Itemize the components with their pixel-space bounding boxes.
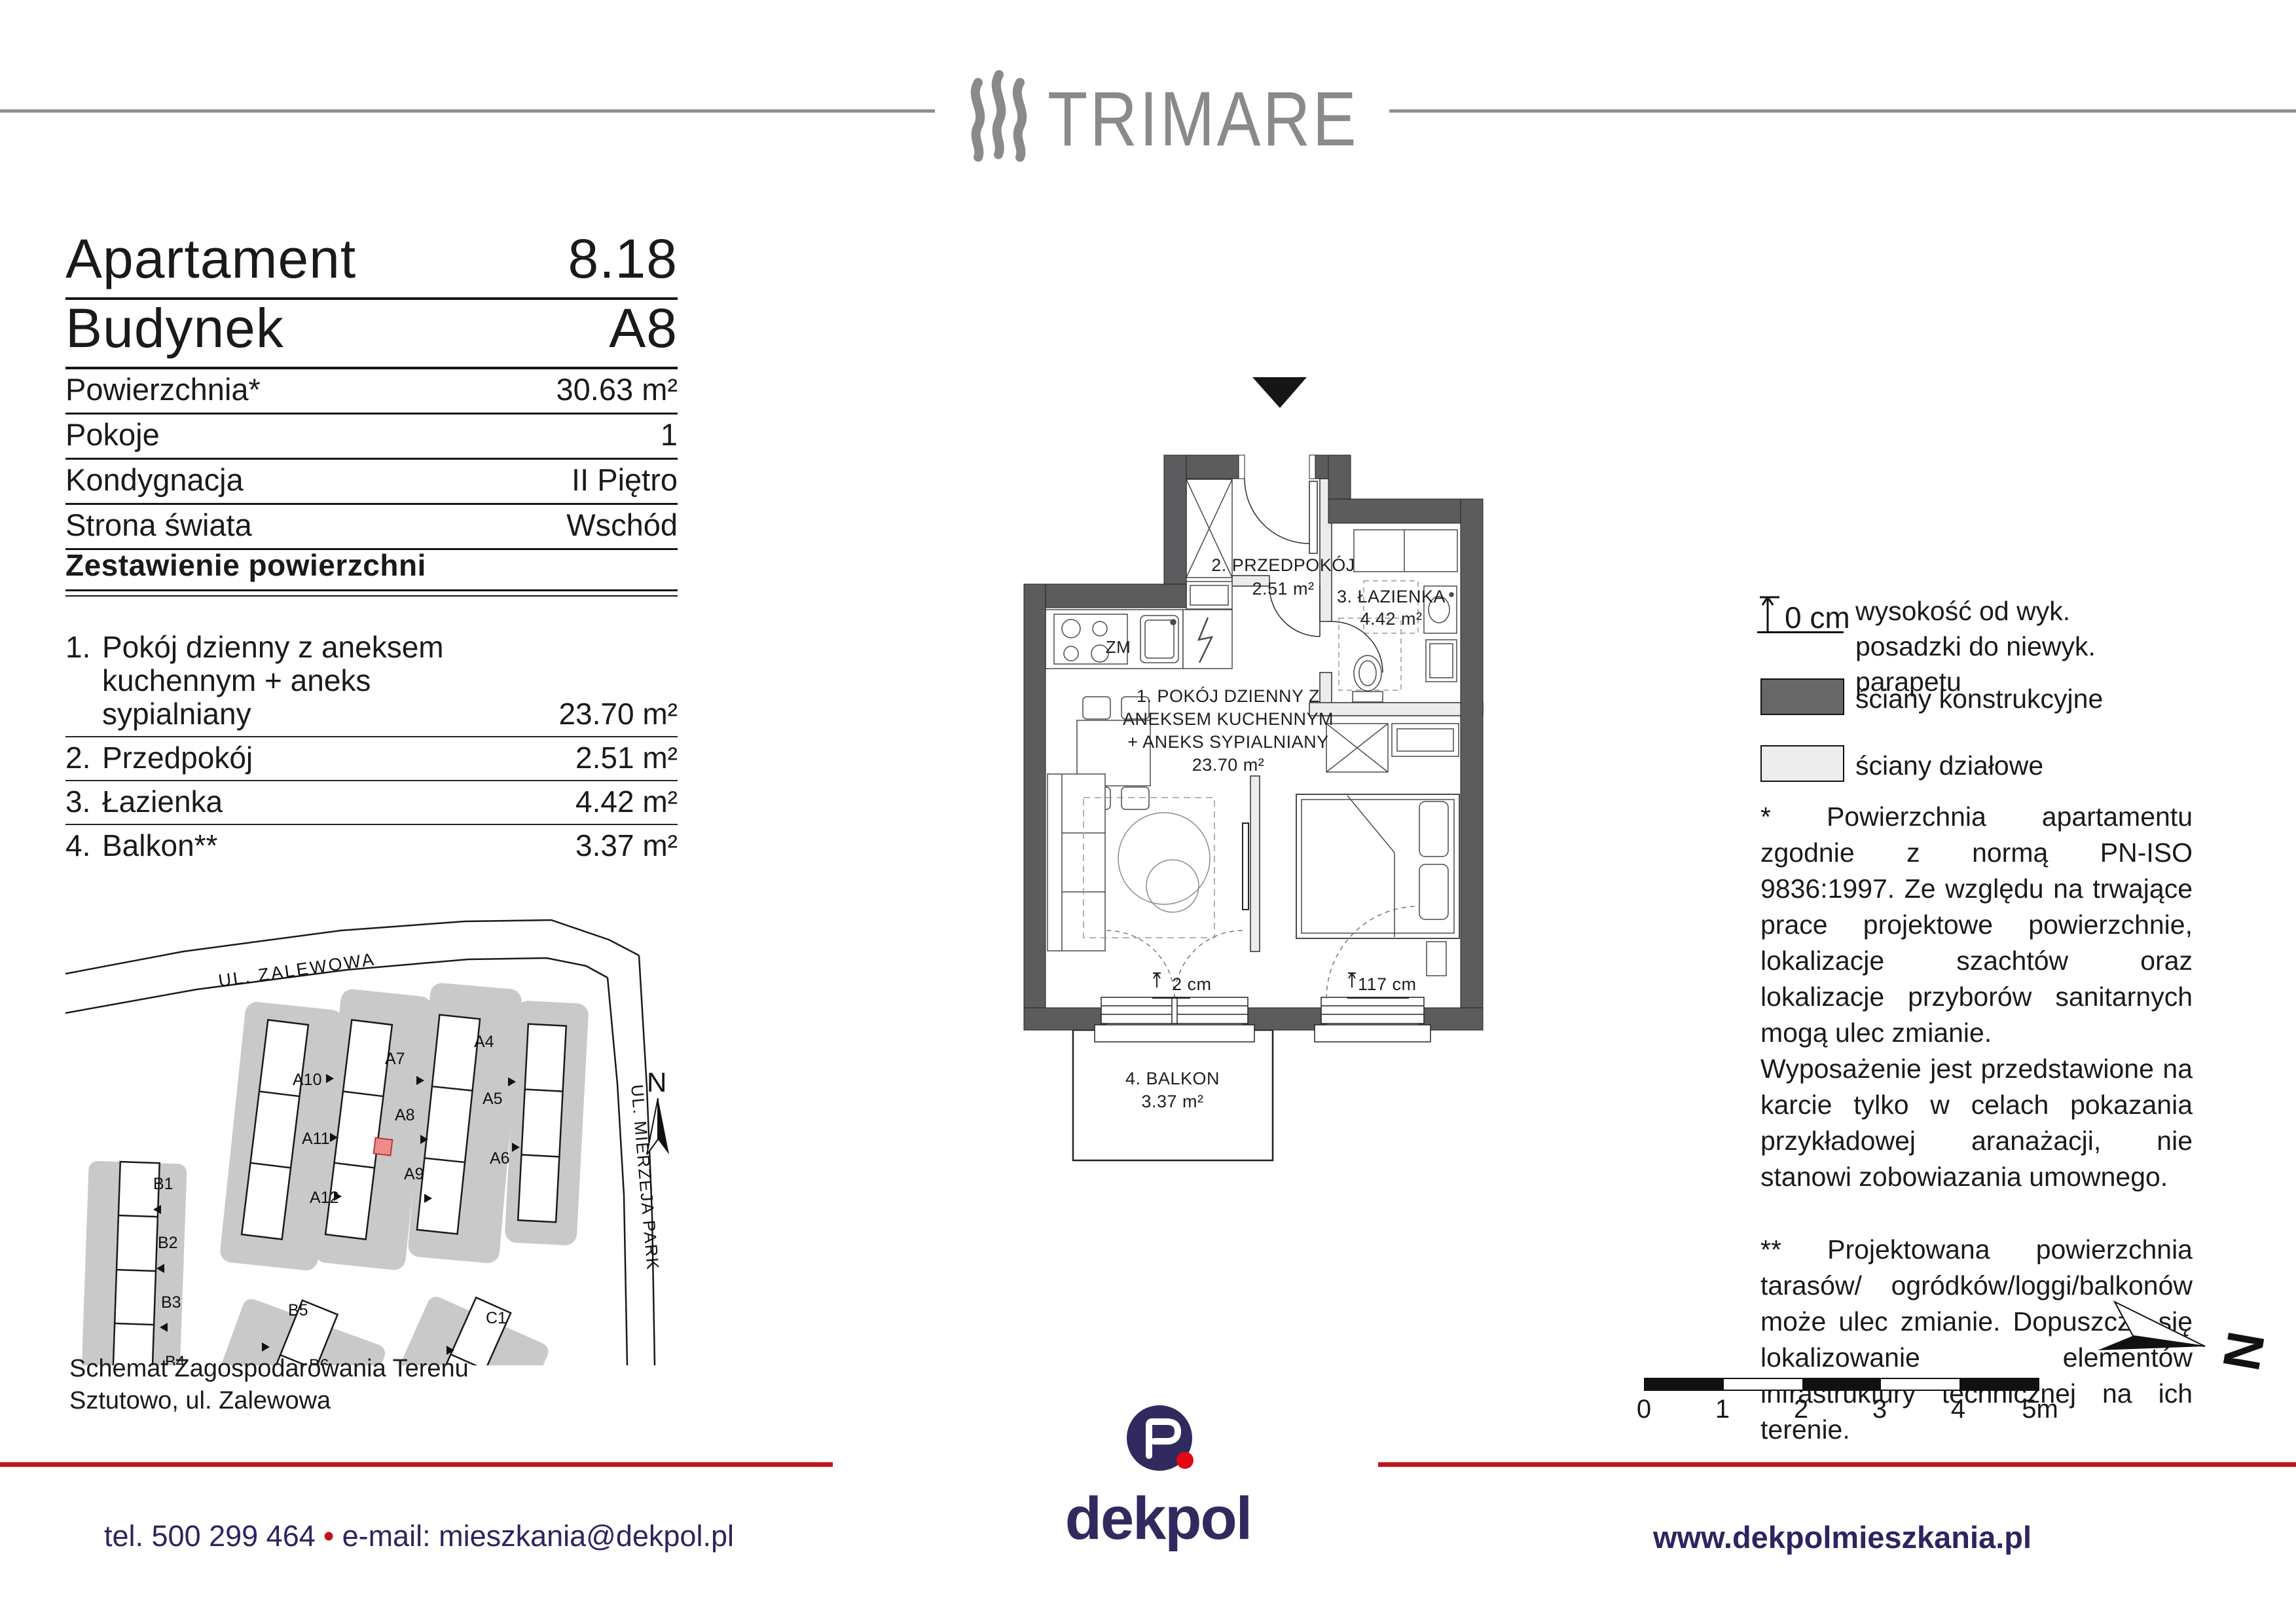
- caption-line1: Schemat Zagospodarowania Terenu: [69, 1353, 469, 1385]
- partition-wall-swatch: [1760, 745, 1844, 782]
- footer-website: www.dekpolmieszkania.pl: [1580, 1519, 2104, 1555]
- item-name: Łazienka: [102, 785, 456, 819]
- rug-icon: [1118, 813, 1210, 904]
- apartment-card-page: TRIMARE Apartament 8.18 Budynek A8 Powie…: [0, 0, 2296, 1624]
- legend-partition-text: ściany działowe: [1855, 748, 2043, 783]
- item-number: 1.: [65, 631, 102, 731]
- living-area: 23.70 m²: [1192, 755, 1265, 775]
- dekpol-red-dot: [1176, 1452, 1194, 1469]
- label-a4: A4: [474, 1033, 494, 1051]
- table-row: Strona świata Wschód: [65, 505, 678, 550]
- table-row: Apartament 8.18: [65, 231, 678, 300]
- item-value: 2.51 m²: [456, 741, 678, 775]
- row-label: Pokoje: [65, 416, 160, 452]
- area-summary-title: Zestawienie powierzchni: [65, 547, 678, 583]
- footer-separator: •: [323, 1519, 334, 1553]
- label-a6: A6: [490, 1149, 510, 1168]
- living-label-1: 1. POKÓJ DZIENNY Z: [1137, 686, 1320, 706]
- bed: [1296, 794, 1459, 976]
- dim-balcony-door: 2 cm: [1172, 974, 1212, 994]
- table-row: Kondygnacja II Piętro: [65, 460, 678, 505]
- item-number: 4.: [65, 829, 102, 862]
- label-c2: C2: [504, 1365, 525, 1365]
- living-label-3: + ANEKS SYPIALNIANY: [1127, 732, 1328, 752]
- floor-plan: 2. PRZEDPOKÓJ 2.51 m² 3. ŁAZIENKA 4.42 m…: [1021, 354, 1493, 1179]
- dekpol-logo: dekpol: [1048, 1372, 1270, 1562]
- scale-bar: [1644, 1378, 2039, 1391]
- list-item: 1. Pokój dzienny z aneksem kuchennym + a…: [65, 597, 678, 737]
- row-label: Kondygnacja: [65, 462, 244, 498]
- item-number: 3.: [65, 785, 102, 819]
- trimare-waves-icon: [975, 75, 1023, 157]
- label-b3: B3: [161, 1293, 181, 1312]
- label-a10: A10: [293, 1071, 321, 1089]
- item-value: 23.70 m²: [456, 631, 678, 731]
- map-north-label: N: [647, 1067, 666, 1098]
- dim-bedroom-window: 117 cm: [1358, 974, 1417, 994]
- bath-area: 4.42 m²: [1360, 609, 1422, 629]
- map-north-icon: N: [647, 1067, 669, 1154]
- balcony-area: 3.37 m²: [1141, 1092, 1203, 1111]
- site-plan: UL. ZALEWOWA UL. MIERZEJA PARK A10 A11 A…: [65, 913, 694, 1365]
- label-a5: A5: [483, 1090, 503, 1108]
- list-item: 3. Łazienka 4.42 m²: [65, 781, 678, 825]
- area-summary: Zestawienie powierzchni 1. Pokój dzienny…: [65, 547, 678, 868]
- label-a8: A8: [395, 1106, 415, 1124]
- list-item: 4. Balkon** 3.37 m²: [65, 825, 678, 868]
- scale-label: 0: [1637, 1395, 1651, 1424]
- tv-icon: [1243, 823, 1248, 910]
- scale-label: 2: [1794, 1395, 1808, 1424]
- sofa: [1048, 774, 1105, 951]
- disclaimer-1a: * Powierzchnia apartamentu zgodnie z nor…: [1760, 799, 2193, 1051]
- scale-label: 4: [1951, 1395, 1965, 1424]
- row-value: 1: [661, 416, 678, 452]
- label-a11: A11: [302, 1130, 330, 1148]
- footer-rule-right: [1378, 1462, 2296, 1467]
- header-rule-right: [1389, 109, 2296, 113]
- item-value: 4.42 m²: [456, 785, 678, 819]
- door-jamb: [1309, 455, 1315, 479]
- trimare-logo: TRIMARE: [956, 58, 1381, 166]
- item-name: Przedpokój: [102, 741, 456, 775]
- brand-wordmark: TRIMARE: [1048, 76, 1358, 162]
- row-label: Powierzchnia*: [65, 371, 261, 407]
- entrance-door-leaf: [1309, 481, 1317, 553]
- site-plan-caption: Schemat Zagospodarowania Terenu Sztutowo…: [69, 1353, 469, 1417]
- dekpol-wordmark: dekpol: [1065, 1485, 1251, 1552]
- hall-wardrobe: [1186, 479, 1232, 609]
- label-c1: C1: [486, 1309, 507, 1327]
- caption-line2: Sztutowo, ul. Zalewowa: [69, 1385, 469, 1417]
- item-name: Balkon**: [102, 829, 456, 862]
- rug-icon-small: [1146, 860, 1199, 912]
- table-row: Budynek A8: [65, 300, 678, 369]
- legend-underline: [1757, 631, 1844, 633]
- kitchen: [1046, 610, 1232, 669]
- footer-tel: tel. 500 299 464: [104, 1519, 316, 1553]
- row-value: 30.63 m²: [556, 371, 678, 407]
- row-value: 8.18: [568, 227, 678, 291]
- scale-label: 3: [1872, 1395, 1887, 1424]
- apartment-info-table: Apartament 8.18 Budynek A8 Powierzchnia*…: [65, 231, 678, 550]
- label-a12: A12: [310, 1189, 338, 1207]
- label-b5: B5: [288, 1301, 308, 1319]
- row-value: II Piętro: [572, 462, 678, 498]
- row-label: Strona świata: [65, 507, 252, 543]
- row-label: Apartament: [65, 227, 356, 291]
- table-row: Powierzchnia* 30.63 m²: [65, 369, 678, 415]
- scale-label: 1: [1715, 1395, 1730, 1424]
- door-jamb: [1239, 455, 1245, 479]
- table-row: Pokoje 1: [65, 415, 678, 460]
- street-label-zalewowa: UL. ZALEWOWA: [217, 950, 377, 991]
- bath-label: 3. ŁAZIENKA: [1337, 587, 1446, 606]
- hall-area: 2.51 m²: [1252, 579, 1314, 599]
- entrance-arrow-icon: [1252, 377, 1307, 408]
- footer-rule-left: [0, 1462, 833, 1467]
- north-compass-icon: N: [2082, 1277, 2278, 1388]
- hall-label: 2. PRZEDPOKÓJ: [1211, 555, 1355, 575]
- label-a9: A9: [404, 1165, 424, 1183]
- item-value: 3.37 m²: [456, 829, 678, 862]
- balcony-label: 4. BALKON: [1125, 1069, 1220, 1088]
- scale-label: 5m: [2022, 1395, 2058, 1424]
- row-value: Wschód: [566, 507, 678, 543]
- footer-contact: tel. 500 299 464 • e-mail: mieszkania@de…: [0, 1519, 838, 1553]
- legend-structural-text: ściany konstrukcyjne: [1855, 681, 2103, 716]
- bedroom-storage: [1326, 724, 1459, 772]
- living-label-2: ANEKSEM KUCHENNYM: [1123, 709, 1334, 729]
- list-item: 2. Przedpokój 2.51 m²: [65, 737, 678, 781]
- highlighted-unit-a8: [374, 1138, 393, 1156]
- nightstand: [1427, 942, 1446, 976]
- label-b1: B1: [153, 1175, 173, 1193]
- row-value: A8: [609, 297, 678, 360]
- header-rule-left: [0, 109, 935, 113]
- double-rule: [65, 589, 678, 597]
- compass-north-label: N: [2212, 1327, 2276, 1375]
- kitchen-zm-label: ZM: [1106, 637, 1131, 657]
- row-label: Budynek: [65, 297, 284, 360]
- disclaimer-1b: Wyposażenie jest przedstawione na karcie…: [1760, 1051, 2193, 1195]
- item-number: 2.: [65, 741, 102, 775]
- legend-height-value: 0 cm: [1785, 600, 1850, 635]
- footer-email: e-mail: mieszkania@dekpol.pl: [342, 1519, 734, 1553]
- structural-wall-swatch: [1760, 678, 1844, 715]
- label-a7: A7: [385, 1050, 405, 1068]
- label-b2: B2: [158, 1234, 178, 1252]
- item-name: Pokój dzienny z aneksem kuchennym + anek…: [102, 631, 456, 731]
